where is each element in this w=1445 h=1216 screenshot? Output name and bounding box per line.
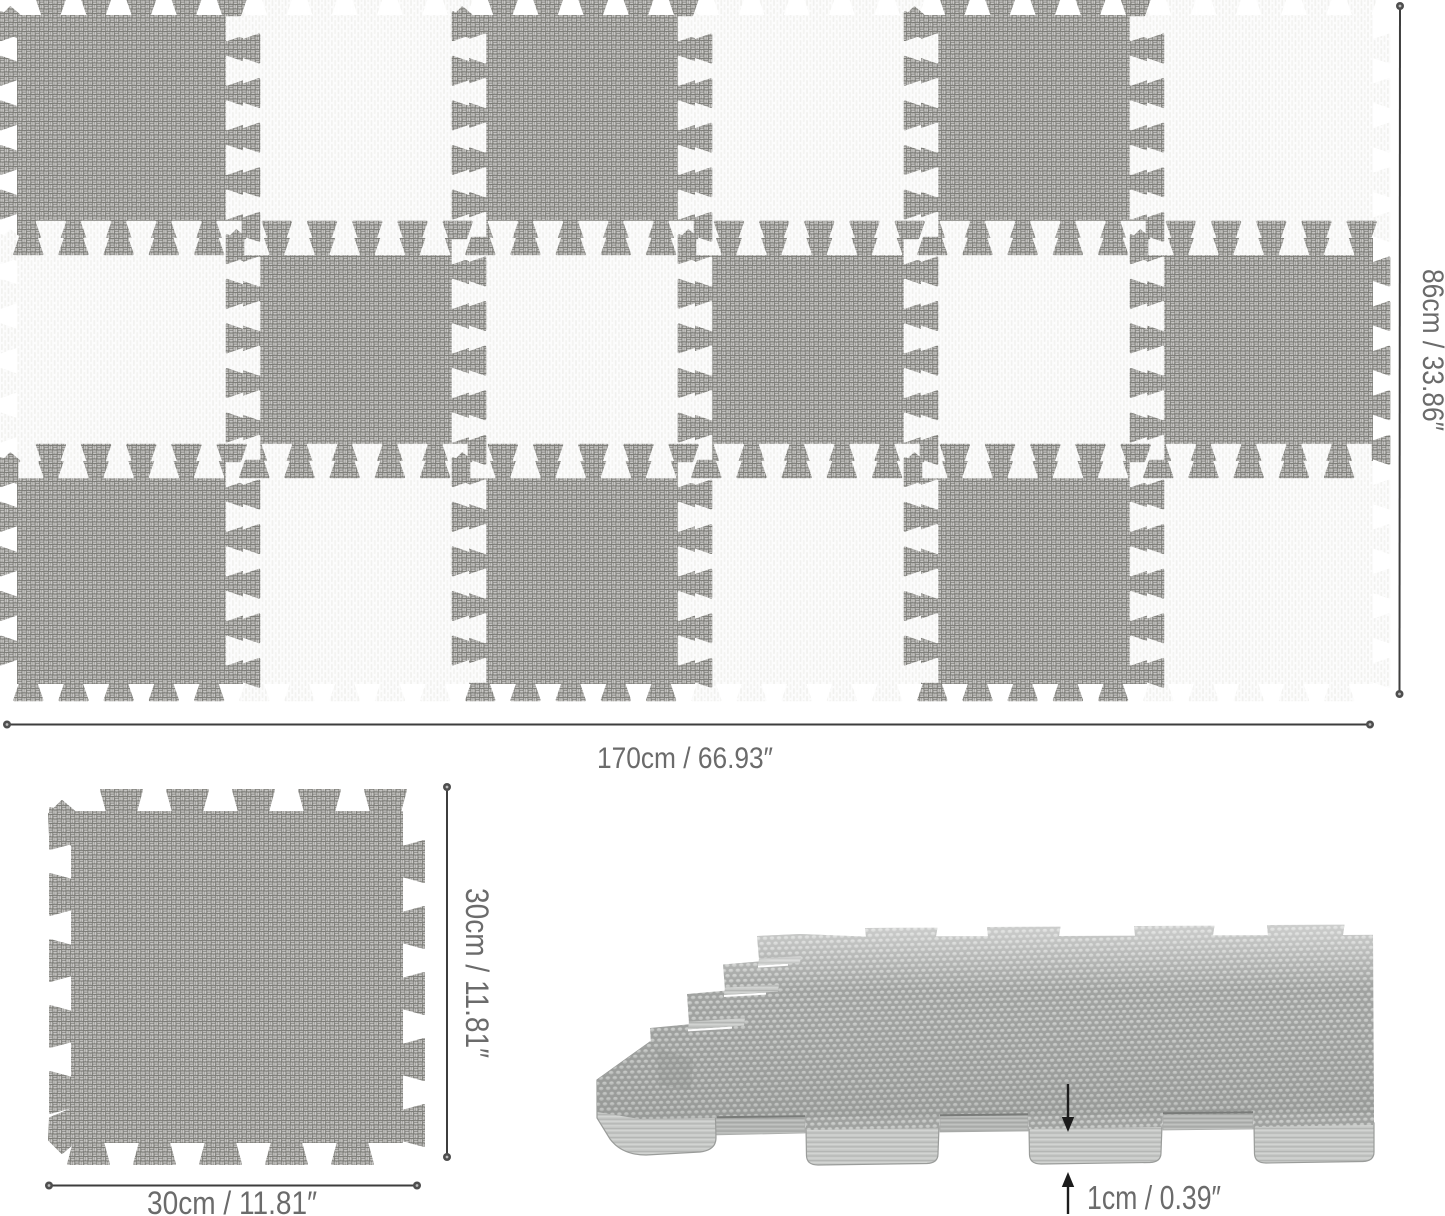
svg-text:86cm / 33.86″: 86cm / 33.86″: [1416, 269, 1445, 431]
svg-text:30cm / 11.81″: 30cm / 11.81″: [147, 1185, 317, 1216]
svg-text:30cm / 11.81″: 30cm / 11.81″: [459, 888, 495, 1058]
svg-text:170cm / 66.93″: 170cm / 66.93″: [597, 742, 773, 775]
svg-text:1cm / 0.39″: 1cm / 0.39″: [1087, 1179, 1221, 1216]
